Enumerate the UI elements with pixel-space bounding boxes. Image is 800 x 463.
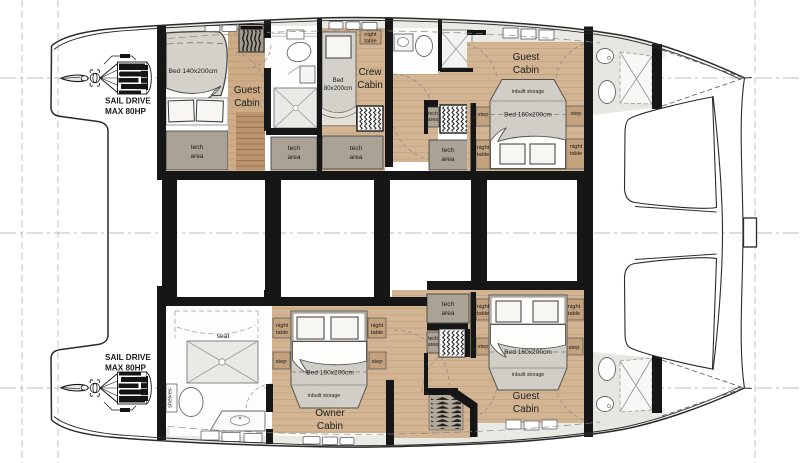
svg-text:table: table xyxy=(477,311,490,317)
svg-text:Cabin: Cabin xyxy=(513,65,539,76)
svg-text:Bed 160x200cm: Bed 160x200cm xyxy=(504,349,552,356)
svg-text:Cabin: Cabin xyxy=(234,98,260,109)
svg-text:table: table xyxy=(570,151,583,157)
svg-text:area: area xyxy=(349,154,362,161)
svg-text:MAX 80HP: MAX 80HP xyxy=(105,107,146,116)
svg-text:SAIL DRIVE: SAIL DRIVE xyxy=(105,353,151,362)
svg-text:Bed: Bed xyxy=(332,77,344,84)
svg-text:table: table xyxy=(371,330,384,336)
svg-text:Guest: Guest xyxy=(513,52,540,63)
svg-text:Cabin: Cabin xyxy=(317,421,343,432)
svg-text:table: table xyxy=(276,330,289,336)
svg-text:Crew: Crew xyxy=(359,67,383,78)
svg-text:Cabin: Cabin xyxy=(357,80,383,91)
svg-text:step: step xyxy=(478,112,489,118)
svg-text:tech: tech xyxy=(442,147,455,154)
svg-text:Bed 160x200cm: Bed 160x200cm xyxy=(306,370,354,377)
svg-text:step: step xyxy=(478,344,489,350)
svg-text:inbuilt storage: inbuilt storage xyxy=(512,372,544,378)
svg-text:night: night xyxy=(364,32,377,38)
svg-text:step: step xyxy=(569,345,580,351)
svg-text:area: area xyxy=(287,154,300,161)
svg-text:table: table xyxy=(364,39,376,45)
svg-text:tech: tech xyxy=(442,301,455,308)
svg-text:Cabin: Cabin xyxy=(513,404,539,415)
svg-text:night: night xyxy=(371,323,384,329)
svg-text:table: table xyxy=(477,152,490,158)
svg-text:shelves: shelves xyxy=(168,388,174,408)
svg-text:night: night xyxy=(477,145,490,151)
svg-text:tech: tech xyxy=(288,145,301,152)
svg-text:table: table xyxy=(568,311,581,317)
svg-text:step: step xyxy=(276,359,287,365)
svg-text:area: area xyxy=(441,310,454,317)
svg-text:MAX 80HP: MAX 80HP xyxy=(105,364,146,373)
svg-text:Guest: Guest xyxy=(513,391,540,402)
svg-text:night: night xyxy=(568,304,581,310)
svg-text:night: night xyxy=(477,304,490,310)
svg-text:inbuilt storage: inbuilt storage xyxy=(308,393,340,399)
svg-text:Guest: Guest xyxy=(234,85,260,96)
svg-text:area: area xyxy=(441,156,454,163)
svg-text:step: step xyxy=(571,111,582,117)
svg-text:step: step xyxy=(372,359,383,365)
svg-text:tech: tech xyxy=(191,144,204,151)
svg-text:Bed 140x200cm: Bed 140x200cm xyxy=(168,68,217,75)
svg-text:area: area xyxy=(190,153,203,160)
svg-text:seat: seat xyxy=(217,333,230,340)
svg-text:80x200cm: 80x200cm xyxy=(324,85,353,92)
svg-text:inbuilt storage: inbuilt storage xyxy=(512,89,544,95)
svg-text:night: night xyxy=(276,323,289,329)
svg-text:SAIL DRIVE: SAIL DRIVE xyxy=(105,97,151,106)
svg-text:night: night xyxy=(570,144,583,150)
svg-text:area: area xyxy=(428,117,438,123)
svg-text:Owner: Owner xyxy=(315,408,345,419)
svg-text:area: area xyxy=(428,342,438,348)
svg-text:tech: tech xyxy=(350,145,363,152)
svg-text:Bed 160x200cm: Bed 160x200cm xyxy=(504,112,552,119)
